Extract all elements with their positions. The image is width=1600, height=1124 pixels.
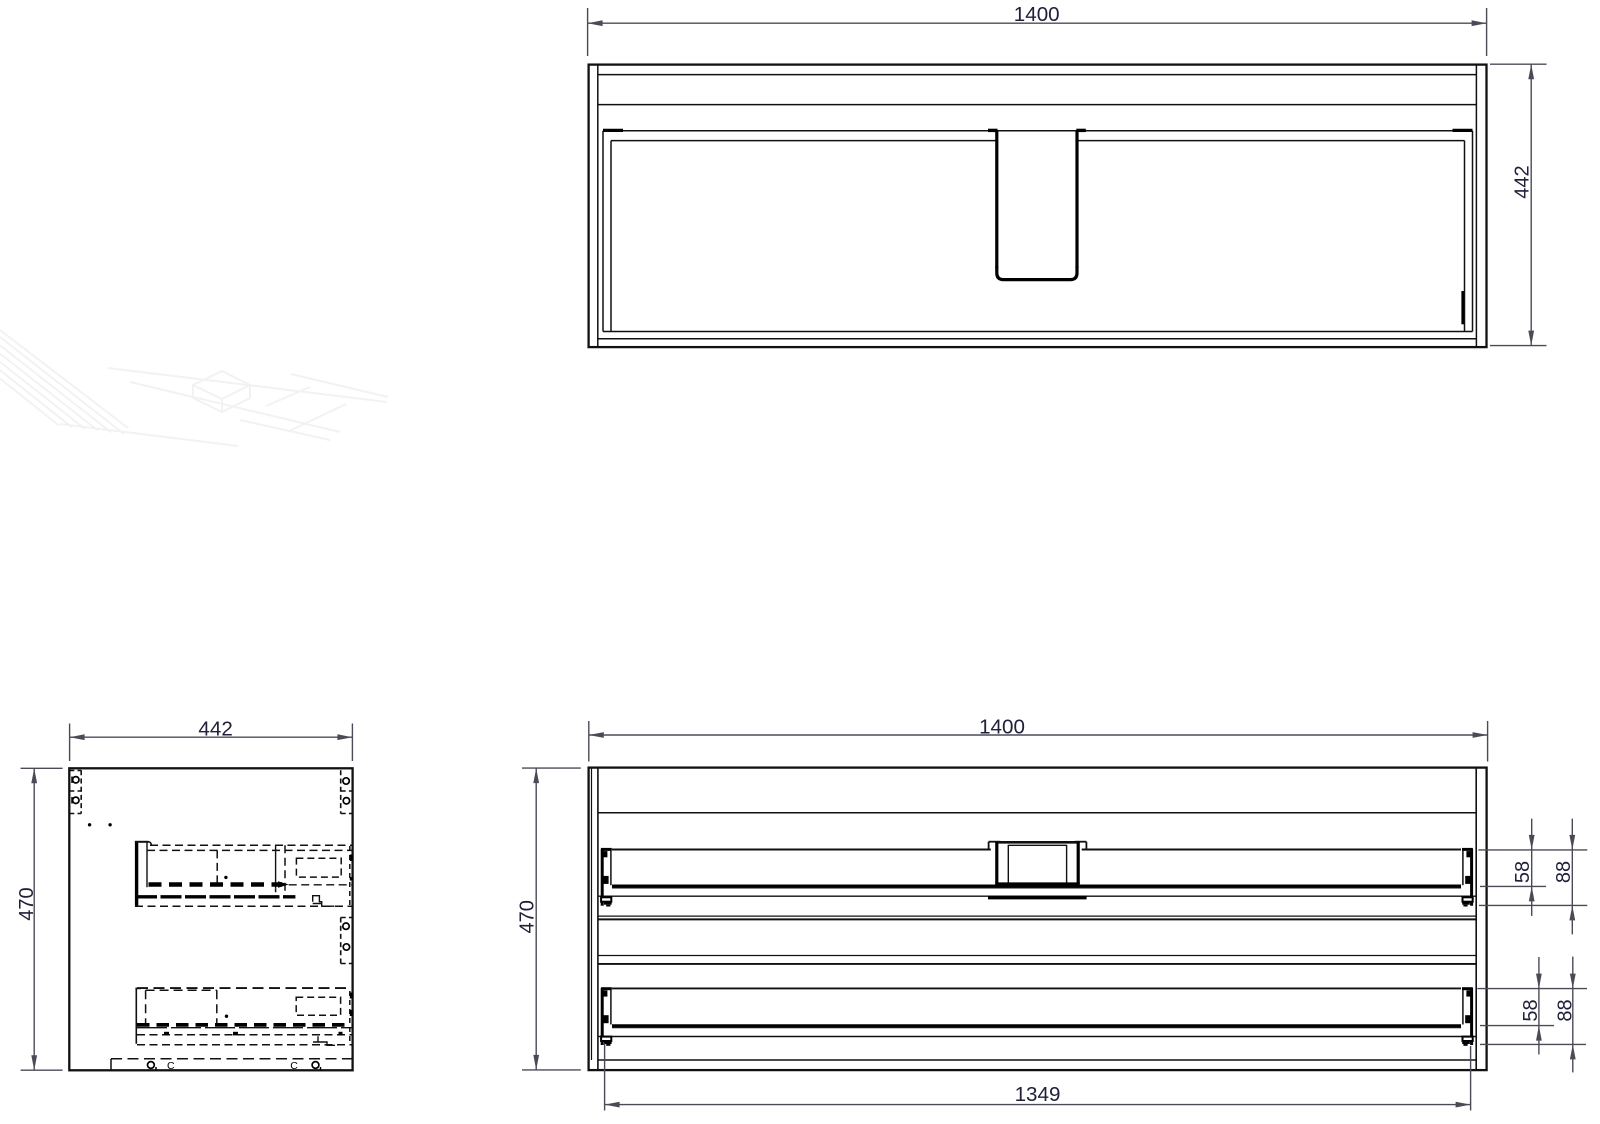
svg-text:442: 442 <box>198 717 232 740</box>
svg-text:470: 470 <box>16 887 38 920</box>
svg-text:C: C <box>167 1060 175 1072</box>
svg-text:1349: 1349 <box>1015 1083 1061 1106</box>
svg-text:442: 442 <box>1512 165 1534 198</box>
svg-text:58: 58 <box>1512 861 1534 883</box>
svg-text:C: C <box>290 1060 298 1072</box>
svg-text:1400: 1400 <box>1014 3 1060 26</box>
svg-text:88: 88 <box>1553 861 1575 883</box>
svg-text:58: 58 <box>1520 999 1542 1021</box>
svg-text:88: 88 <box>1555 999 1577 1021</box>
svg-text:470: 470 <box>516 900 538 933</box>
svg-text:1400: 1400 <box>979 715 1025 738</box>
